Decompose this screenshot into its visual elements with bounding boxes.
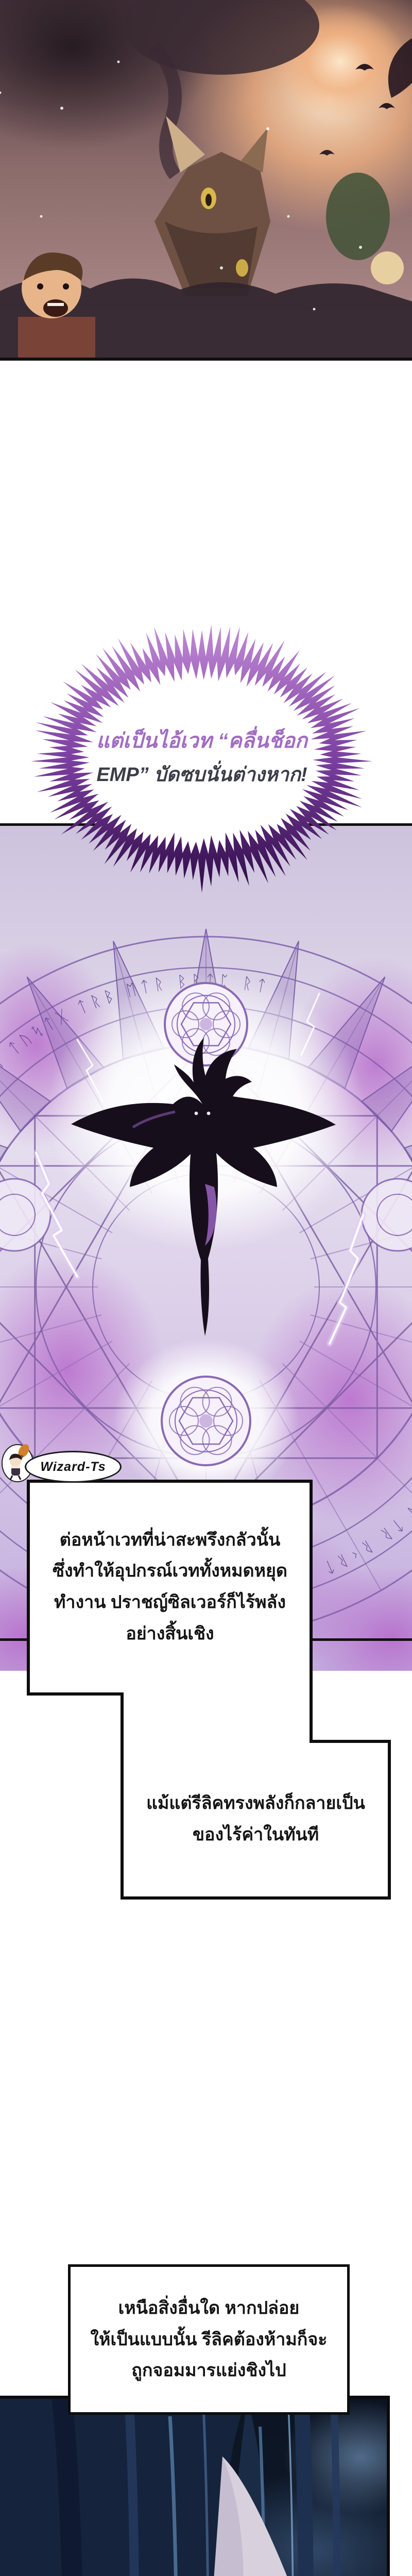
green-monster <box>326 173 390 260</box>
flower-medallion <box>162 1377 250 1465</box>
caption-line: แม้แต่รีลิคทรงพลังก็กลายเป็น <box>146 1788 365 1819</box>
battle-scene-panel <box>0 0 412 361</box>
speech-bubble-line: แต่เป็นไอ้เวท “คลื่นช็อก <box>96 723 307 758</box>
caption-line: ทำงาน ปราชญ์ซิลเวอร์ก็ไร้พลัง <box>54 1587 286 1618</box>
speech-bubble-line: EMP” บัดซบนั่นต่างหาก! <box>96 758 307 792</box>
caption-line: ถูกจอมมารแย่งชิงไป <box>131 2355 286 2386</box>
watermark-label: Wizard-Ts <box>40 1460 106 1475</box>
caption-box-3: เหนือสิ่งอื่นใด หากปล่อย ให้เป็นแบบนั้น … <box>68 2264 350 2415</box>
caption-box-2: แม้แต่รีลิคทรงพลังก็กลายเป็น ของไร้ค่าใน… <box>124 1744 388 1894</box>
caption-line: ของไร้ค่าในทันที <box>193 1819 319 1851</box>
blonde-woman <box>371 251 404 284</box>
speech-bubble: แต่เป็นไอ้เวท “คลื่นช็อก EMP” บัดซบนั่นต… <box>73 701 331 814</box>
caption-line: เหนือสิ่งอื่นใด หากปล่อย <box>118 2293 300 2324</box>
watermark-badge: Wizard-Ts <box>25 1451 122 1483</box>
caption-line: อย่างสิ้นเชิง <box>126 1618 214 1650</box>
portrait-panel <box>0 2396 390 2576</box>
flower-medallion <box>165 983 247 1065</box>
caption-line: ต่อหน้าเวทที่น่าสะพรึงกลัวนั้น <box>60 1524 280 1556</box>
caption-line: ซึ่งทำให้อุปกรณ์เวททั้งหมดหยุด <box>53 1555 287 1587</box>
webtoon-page: ᚹᚢᛞᛖᚺᛋ ᛏᚢᛪᛏᚷ ᛏᚱᛒ ᛖᛏᚱ ᛒᛒᛏᛈ ᚱᛏ ᛈᛋᛏᛗᛞ ᛏᚱ ᚱᚲ… <box>0 0 412 2576</box>
caption-line: ให้เป็นแบบนั้น รีลิคต้องห้ามก็จะ <box>90 2324 327 2355</box>
caption-box-1: ต่อหน้าเวทที่น่าสะพรึงกลัวนั้น ซึ่งทำให้… <box>30 1484 310 1690</box>
